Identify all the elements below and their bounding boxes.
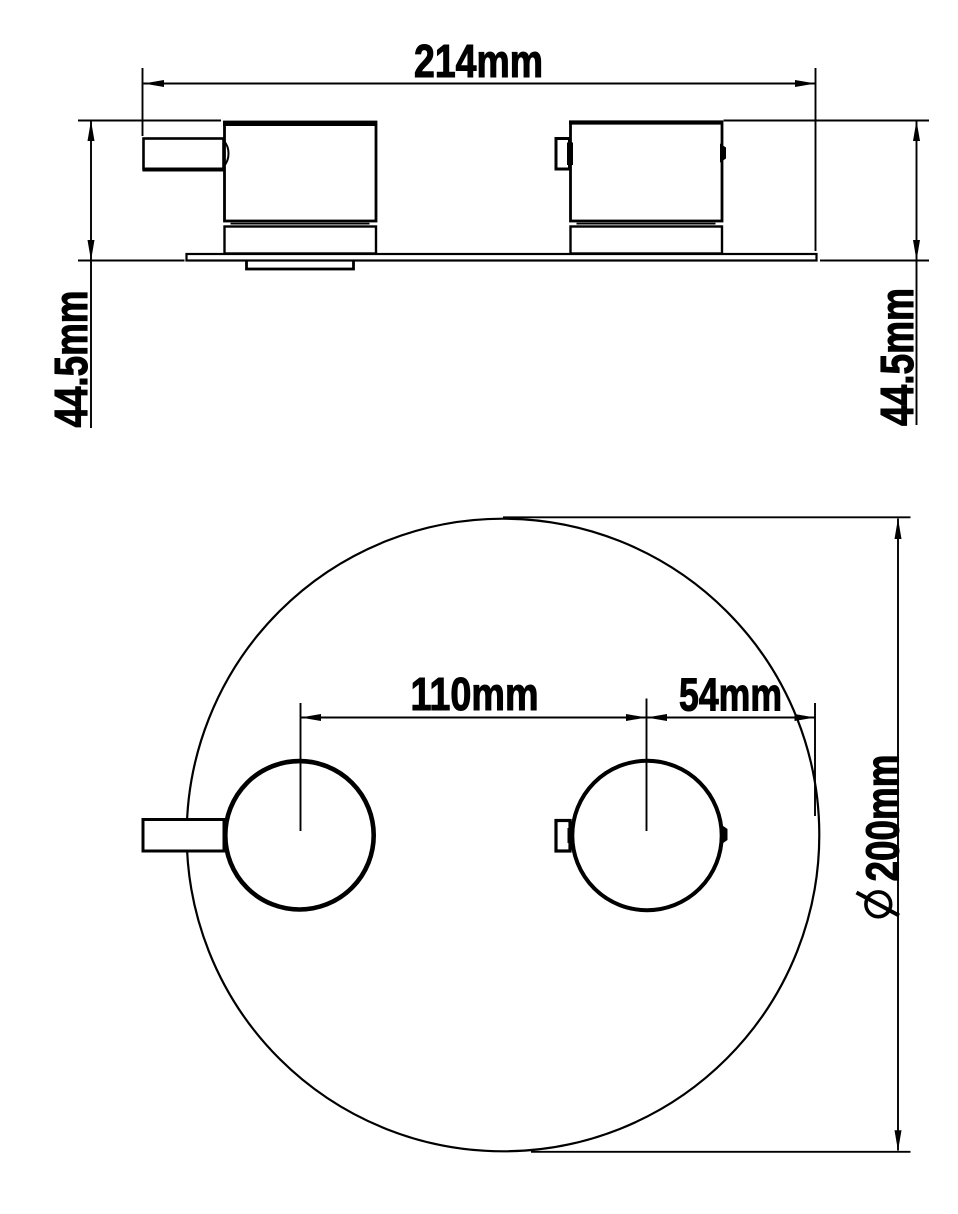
svg-text:214mm: 214mm [414,35,543,87]
svg-text:110mm: 110mm [411,668,539,720]
svg-text:200mm: 200mm [857,755,909,882]
svg-text:44.5mm: 44.5mm [871,288,923,426]
svg-text:54mm: 54mm [679,669,782,721]
svg-text:44.5mm: 44.5mm [45,291,97,428]
